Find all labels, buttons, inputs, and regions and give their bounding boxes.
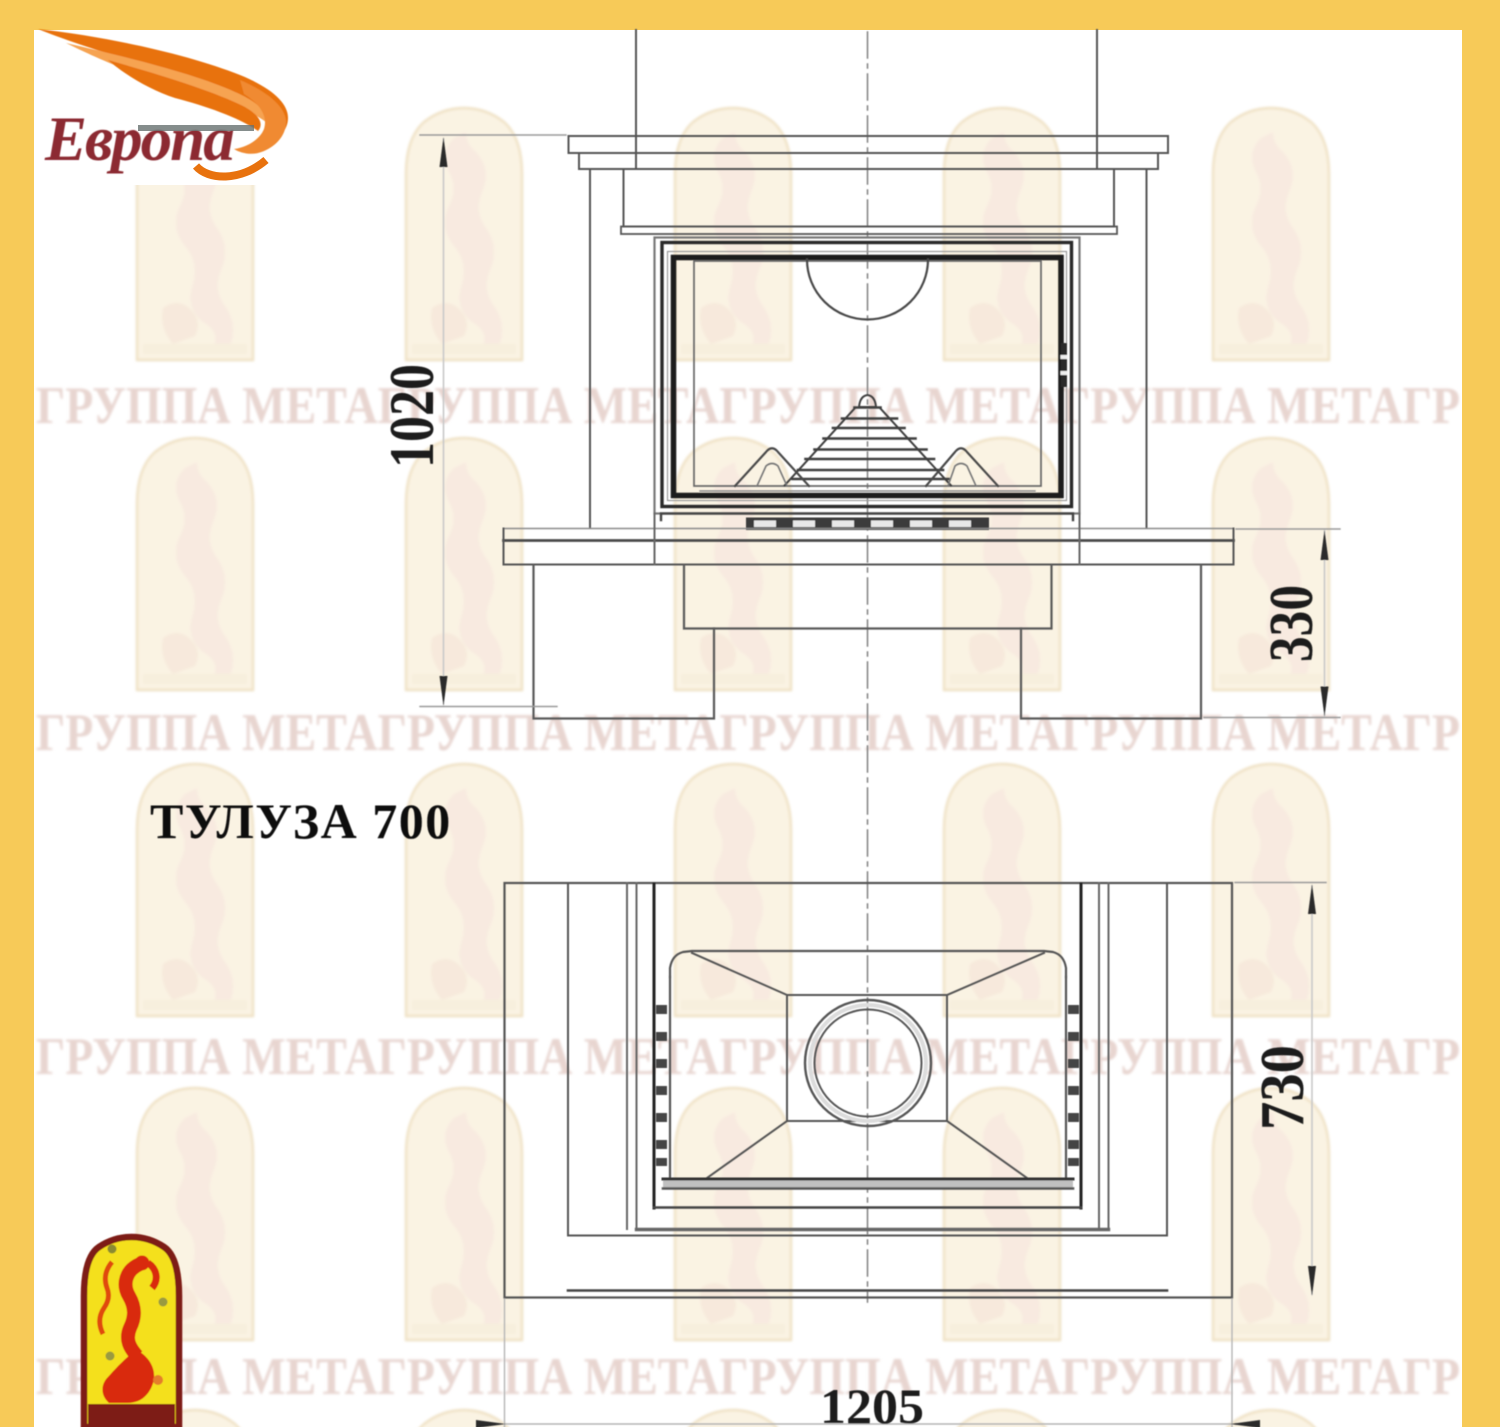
svg-text:ГРУППА МЕТАГРУППА МЕТАГРУППА М: ГРУППА МЕТАГРУППА МЕТАГРУППА МЕТАГРУППА … [36, 1028, 1460, 1086]
svg-text:ГРУППА МЕТАГРУППА МЕТАГРУППА М: ГРУППА МЕТАГРУППА МЕТАГРУППА МЕТАГРУППА … [36, 704, 1460, 762]
svg-text:ТУЛУЗА 700: ТУЛУЗА 700 [150, 793, 452, 849]
svg-text:1205: 1205 [820, 1378, 924, 1427]
svg-text:ГРУППА МЕТАГРУППА МЕТАГРУППА М: ГРУППА МЕТАГРУППА МЕТАГРУППА МЕТАГРУППА … [36, 377, 1460, 435]
svg-text:730: 730 [1249, 1045, 1317, 1130]
svg-text:330: 330 [1258, 585, 1326, 662]
svg-text:ГРУППА МЕТАГРУППА МЕТАГРУППА М: ГРУППА МЕТАГРУППА МЕТАГРУППА МЕТАГРУППА … [36, 1348, 1460, 1406]
svg-text:Европа: Европа [44, 104, 233, 174]
svg-text:1020: 1020 [376, 364, 447, 468]
